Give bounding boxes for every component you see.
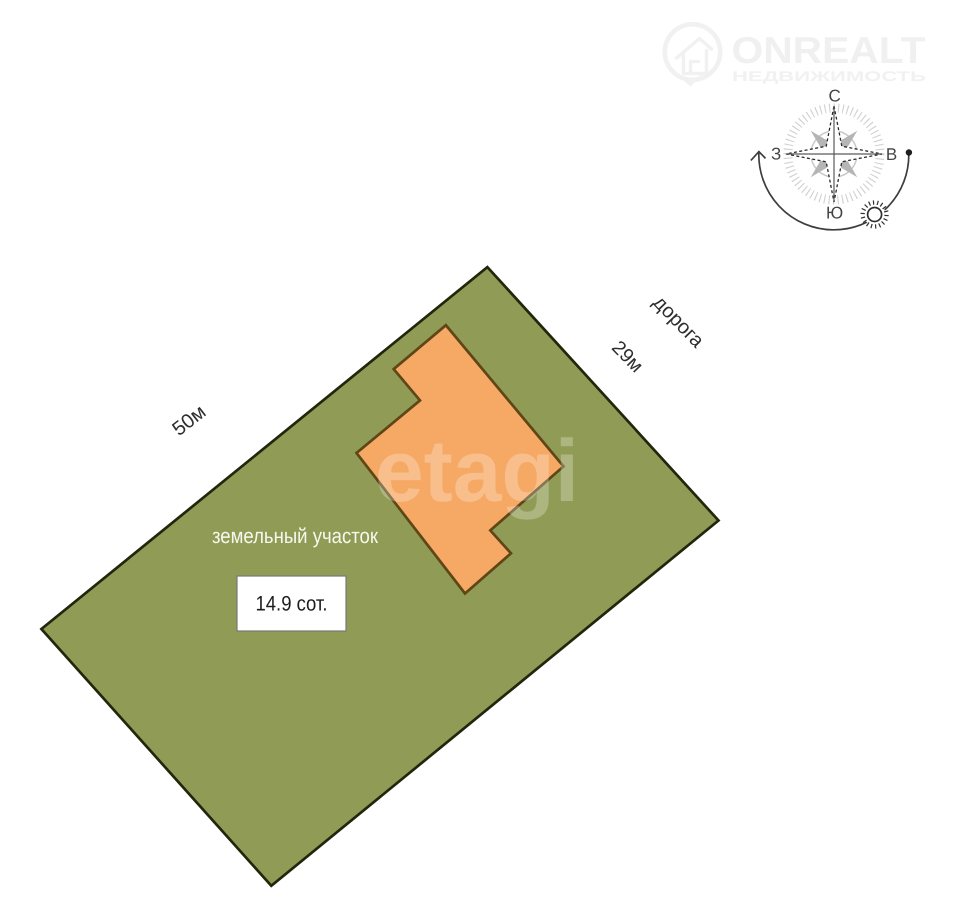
svg-text:земельный участок: земельный участок — [212, 525, 379, 548]
svg-text:Ю: Ю — [826, 204, 843, 223]
svg-text:С: С — [828, 87, 840, 106]
svg-text:14.9 сот.: 14.9 сот. — [256, 593, 328, 616]
svg-text:З: З — [771, 145, 781, 164]
svg-text:НЕДВИЖИМОСТЬ: НЕДВИЖИМОСТЬ — [732, 68, 926, 84]
svg-text:etagi: etagi — [375, 421, 579, 520]
svg-text:В: В — [886, 145, 897, 164]
svg-text:ONREALT: ONREALT — [732, 29, 926, 71]
